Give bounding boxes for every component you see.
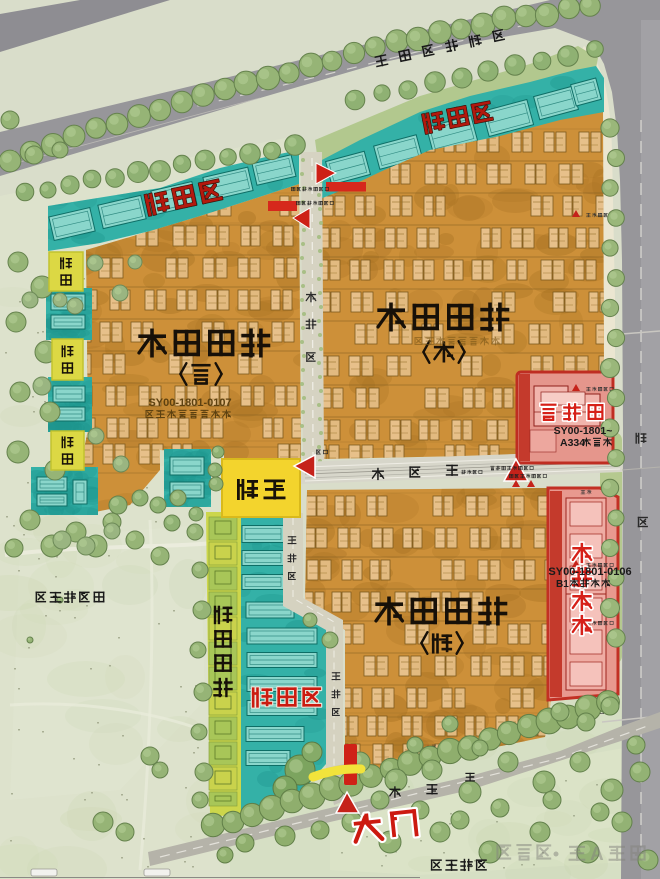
- svg-text:SY00-1801~: SY00-1801~: [554, 425, 613, 437]
- svg-text:A334: A334: [560, 437, 585, 449]
- svg-text:A: A: [590, 844, 604, 865]
- svg-text:SY00-1801-0106: SY00-1801-0106: [548, 566, 631, 578]
- svg-text:B1: B1: [556, 579, 569, 590]
- svg-text:SY00-1801-0107: SY00-1801-0107: [148, 397, 231, 409]
